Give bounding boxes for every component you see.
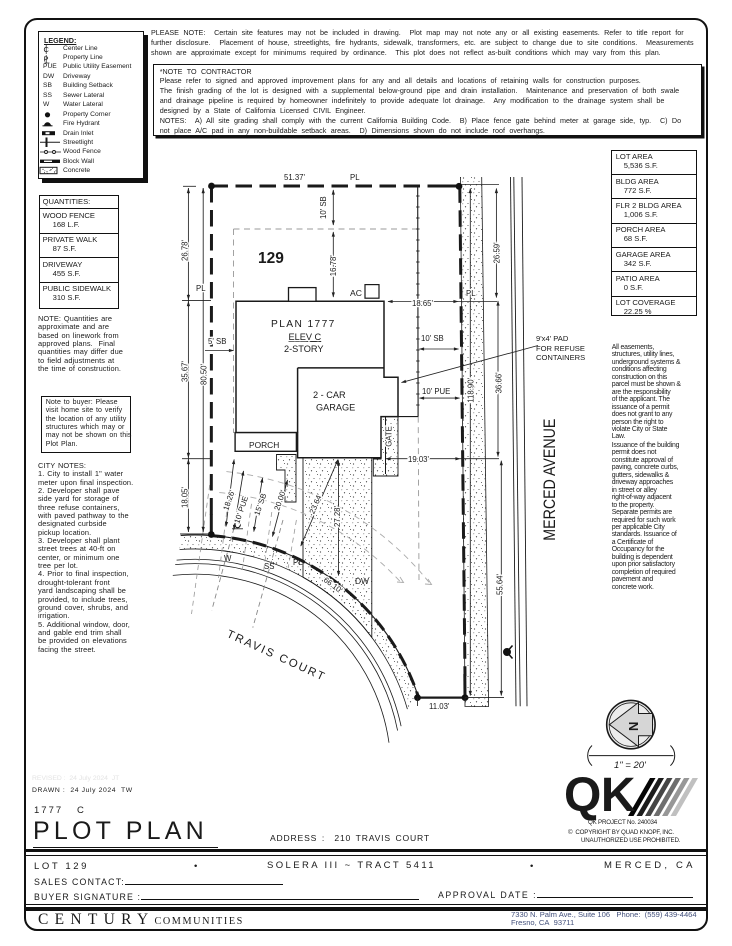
svg-text:26.78': 26.78' bbox=[181, 239, 190, 261]
svg-text:80.50': 80.50' bbox=[200, 363, 209, 385]
svg-text:10' SB: 10' SB bbox=[421, 334, 444, 343]
svg-text:129: 129 bbox=[258, 250, 284, 267]
svg-text:W: W bbox=[224, 554, 232, 563]
svg-text:19.03': 19.03' bbox=[408, 455, 430, 464]
svg-text:35.67': 35.67' bbox=[181, 360, 190, 382]
svg-text:AC: AC bbox=[350, 288, 362, 298]
svg-text:PLAN 1777: PLAN 1777 bbox=[271, 319, 336, 330]
svg-text:10' PUE: 10' PUE bbox=[422, 387, 450, 396]
svg-text:GATE: GATE bbox=[385, 426, 394, 447]
svg-text:ELEV C: ELEV C bbox=[289, 332, 322, 342]
svg-text:2 - CAR: 2 - CAR bbox=[313, 390, 346, 400]
svg-text:15' SB: 15' SB bbox=[252, 492, 268, 516]
svg-text:5' SB: 5' SB bbox=[208, 337, 226, 346]
svg-text:PL: PL bbox=[466, 289, 476, 298]
svg-text:GARAGE: GARAGE bbox=[316, 403, 355, 413]
svg-text:18.26': 18.26' bbox=[221, 488, 237, 511]
svg-text:N: N bbox=[626, 722, 641, 731]
svg-text:DW: DW bbox=[355, 576, 369, 586]
svg-text:55.64': 55.64' bbox=[496, 573, 505, 595]
svg-text:SS: SS bbox=[264, 562, 274, 571]
svg-text:18.65': 18.65' bbox=[412, 299, 434, 308]
svg-text:2-STORY: 2-STORY bbox=[284, 344, 324, 354]
svg-text:27.28': 27.28' bbox=[333, 505, 342, 527]
svg-text:51.37': 51.37' bbox=[284, 173, 306, 182]
svg-text:11.03': 11.03' bbox=[429, 702, 450, 711]
svg-text:10' PUE: 10' PUE bbox=[232, 495, 250, 525]
svg-text:TRAVIS COURT: TRAVIS COURT bbox=[225, 628, 328, 684]
svg-text:10' SB: 10' SB bbox=[319, 196, 328, 219]
svg-text:36.66': 36.66' bbox=[495, 372, 504, 394]
svg-text:MERCED AVENUE: MERCED AVENUE bbox=[540, 419, 559, 541]
svg-text:PL: PL bbox=[196, 284, 206, 293]
svg-text:18.05': 18.05' bbox=[181, 486, 190, 508]
svg-text:16.78': 16.78' bbox=[329, 255, 338, 277]
svg-text:PL: PL bbox=[350, 173, 360, 182]
svg-text:118.90': 118.90' bbox=[467, 377, 476, 402]
svg-text:PL: PL bbox=[293, 558, 303, 567]
svg-text:26.59': 26.59' bbox=[493, 242, 502, 264]
svg-text:PORCH: PORCH bbox=[249, 440, 279, 450]
